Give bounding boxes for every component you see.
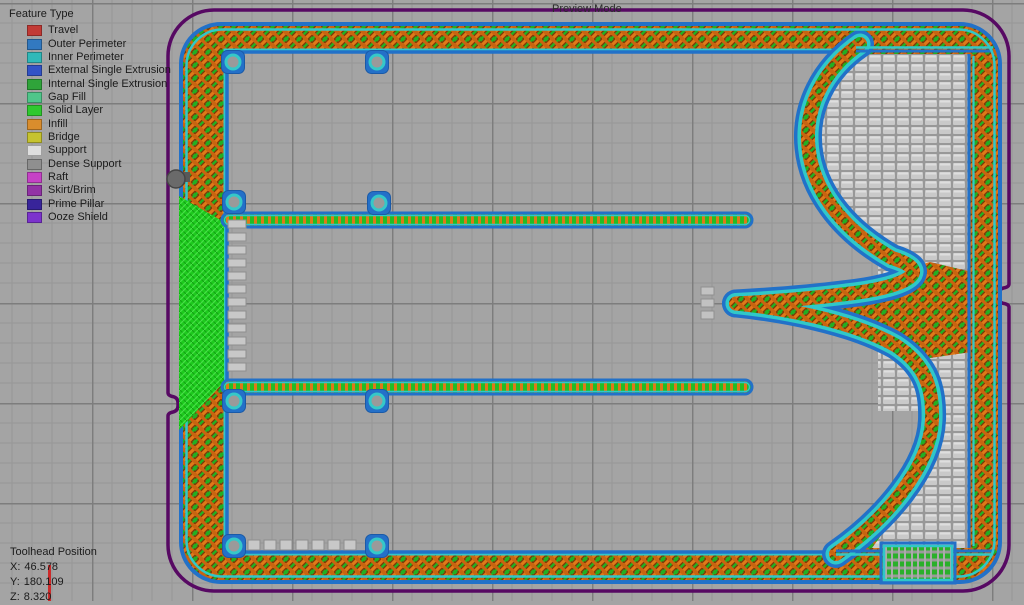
legend-color-swatch [27, 212, 42, 223]
support-tip-bracket [701, 287, 714, 319]
legend-color-swatch [27, 79, 42, 90]
legend-item-label: Bridge [48, 131, 80, 144]
legend-item-support: Support [9, 144, 171, 157]
legend-item-infill: Infill [9, 117, 171, 130]
legend-color-swatch [27, 159, 42, 170]
legend-item-dense-support: Dense Support [9, 157, 171, 170]
legend-item-external-single-extrusion: External Single Extrusion [9, 64, 171, 77]
legend-item-label: Support [48, 144, 87, 157]
legend-item-internal-single-extrusion: Internal Single Extrusion [9, 77, 171, 90]
toolhead-y-label: Y: [10, 576, 20, 588]
legend-item-label: Ooze Shield [48, 211, 108, 224]
legend-item-label: Travel [48, 24, 78, 37]
legend-item-label: Outer Perimeter [48, 38, 126, 51]
legend-item-label: Internal Single Extrusion [48, 78, 167, 91]
legend-item-label: Infill [48, 118, 68, 131]
legend-color-swatch [27, 145, 42, 156]
toolhead-y-value: 180.109 [24, 576, 64, 588]
legend-color-swatch [27, 119, 42, 130]
legend-rows: Travel Outer Perimeter Inner Perimeter E… [9, 24, 171, 224]
preview-mode-label: Preview Mode [552, 3, 622, 16]
bottom-notch [881, 543, 955, 583]
toolhead-x: X:46.578 [10, 561, 97, 576]
legend-item-inner-perimeter: Inner Perimeter [9, 51, 171, 64]
legend-title: Feature Type [9, 8, 171, 21]
legend-item-prime-pillar: Prime Pillar [9, 197, 171, 210]
legend-item-bridge: Bridge [9, 131, 171, 144]
legend-item-solid-layer: Solid Layer [9, 104, 171, 117]
legend-item-gap-fill: Gap Fill [9, 91, 171, 104]
legend-item-label: Gap Fill [48, 91, 86, 104]
legend-color-swatch [27, 52, 42, 63]
legend-item-outer-perimeter: Outer Perimeter [9, 37, 171, 50]
legend-item-label: Solid Layer [48, 104, 103, 117]
legend-item-label: Skirt/Brim [48, 184, 96, 197]
legend-item-label: Prime Pillar [48, 198, 104, 211]
legend-color-swatch [27, 92, 42, 103]
legend-item-label: Raft [48, 171, 68, 184]
legend-color-swatch [27, 172, 42, 183]
toolhead-y: Y:180.109 [10, 576, 97, 591]
legend-color-swatch [27, 185, 42, 196]
toolhead-x-value: 46.578 [24, 561, 58, 573]
legend-color-swatch [27, 25, 42, 36]
legend-item-skirt-brim: Skirt/Brim [9, 184, 171, 197]
support-tab-row [248, 540, 356, 550]
printed-part [179, 24, 1000, 583]
legend-color-swatch [27, 199, 42, 210]
toolhead-x-label: X: [10, 561, 20, 573]
legend-color-swatch [27, 132, 42, 143]
legend-item-label: External Single Extrusion [48, 64, 171, 77]
toolhead-z: Z:8.320 [10, 591, 97, 605]
legend-color-swatch [27, 65, 42, 76]
legend-item-raft: Raft [9, 171, 171, 184]
legend-color-swatch [27, 39, 42, 50]
legend-item-label: Inner Perimeter [48, 51, 124, 64]
legend-item-ooze-shield: Ooze Shield [9, 211, 171, 224]
legend-item-travel: Travel [9, 24, 171, 37]
legend-item-label: Dense Support [48, 158, 121, 171]
toolhead-position-title: Toolhead Position [10, 546, 97, 559]
legend-color-swatch [27, 105, 42, 116]
toolhead-position-panel: Toolhead Position X:46.578 Y:180.109 Z:8… [10, 546, 97, 605]
right-wall [969, 48, 997, 554]
feature-type-legend: Feature Type Travel Outer Perimeter Inne… [9, 8, 171, 224]
